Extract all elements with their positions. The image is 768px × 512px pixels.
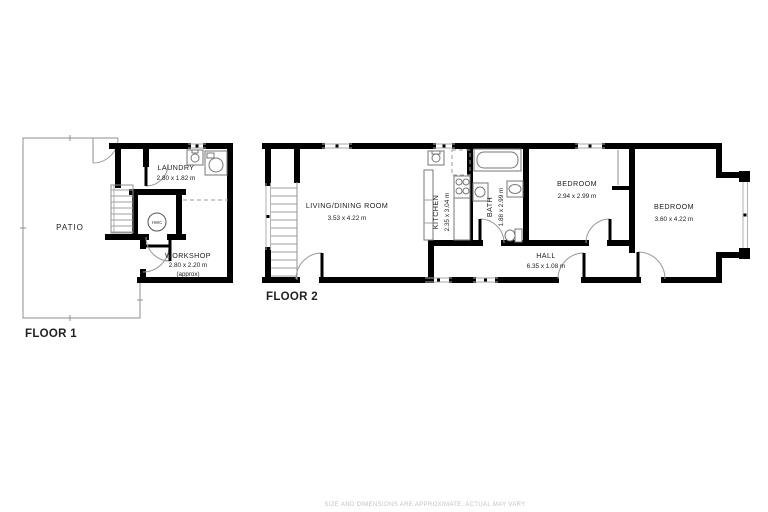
bedroom1-door: [586, 219, 610, 243]
floor1-plan: HWC PATIO LAUNDRY 2.80 x 1.82 m WORKSHOP…: [20, 135, 230, 340]
floor1-title: FLOOR 1: [25, 328, 77, 340]
workshop-dims: 2.80 x 2.20 m: [169, 262, 208, 269]
hall-dims: 6.35 x 1.08 m: [527, 263, 566, 270]
bath-dims: 1.88 x 2.99 m: [498, 188, 505, 227]
floor2-title: FLOOR 2: [266, 291, 318, 303]
hwc-label: HWC: [152, 220, 163, 225]
workshop-note: (approx): [176, 271, 199, 278]
bay-window: [739, 171, 750, 259]
bathtub-icon: [474, 149, 521, 171]
kitchen-window-top: [433, 144, 455, 148]
laundry-dims: 2.80 x 1.82 m: [157, 175, 196, 182]
living-label: LIVING/DINING ROOM: [306, 201, 388, 210]
front-door: [296, 253, 322, 280]
floorplan-page: HWC PATIO LAUNDRY 2.80 x 1.82 m WORKSHOP…: [0, 0, 768, 512]
bath-label: BATH: [485, 197, 494, 217]
floorplan-drawing: HWC PATIO LAUNDRY 2.80 x 1.82 m WORKSHOP…: [0, 0, 768, 512]
bedroom2-door: [638, 252, 665, 280]
living-dims: 3.53 x 4.22 m: [328, 215, 367, 222]
bedroom1-window-top: [575, 144, 605, 148]
living-window-top: [322, 144, 352, 148]
kitchen-dims: 2.35 x 3.04 m: [444, 193, 451, 232]
stairwell-window-left: [266, 183, 271, 250]
bedroom2-label: BEDROOM: [654, 202, 694, 211]
workshop-label: WORKSHOP: [165, 251, 211, 260]
stove-icon: [454, 176, 470, 198]
washing-machine-icon: [205, 151, 227, 175]
bedroom1-label: BEDROOM: [557, 179, 597, 188]
bath-vanity-icon: [507, 181, 523, 197]
hall-label: HALL: [536, 251, 556, 260]
bedroom2-dims: 3.60 x 4.22 m: [655, 216, 694, 223]
hwc-icon: HWC: [148, 213, 166, 231]
kitchen-label: KITCHEN: [431, 195, 440, 229]
laundry-label: LAUNDRY: [157, 163, 194, 172]
stairs-floor2-icon: [271, 182, 297, 280]
bedroom1-dims: 2.94 x 2.99 m: [558, 193, 597, 200]
hall-window-bottom: [473, 278, 498, 282]
patio-label: PATIO: [56, 223, 84, 232]
toilet-icon: [505, 229, 522, 242]
floor2-plan: LIVING/DINING ROOM 3.53 x 4.22 m KITCHEN…: [265, 144, 750, 303]
kitchen-sink-icon: [428, 151, 444, 165]
patio-door-arc: [93, 138, 118, 163]
disclaimer-text: SIZE AND DIMENSIONS ARE APPROXIMATE, ACT…: [324, 502, 525, 508]
